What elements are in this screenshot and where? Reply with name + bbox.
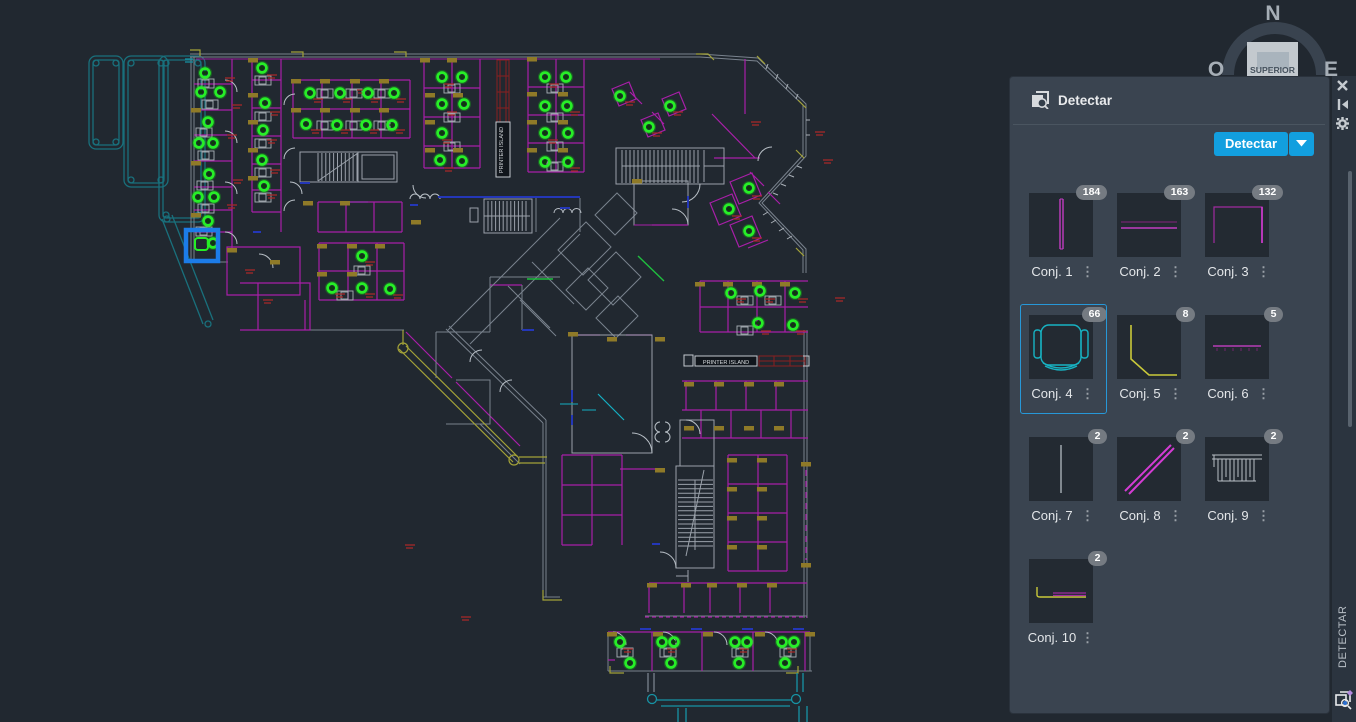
- svg-text:PRINTER ISLAND: PRINTER ISLAND: [499, 127, 505, 173]
- svg-text:N: N: [1265, 2, 1280, 25]
- svg-text:SUPERIOR: SUPERIOR: [1250, 65, 1296, 75]
- svg-text:PRINTER ISLAND: PRINTER ISLAND: [703, 360, 749, 366]
